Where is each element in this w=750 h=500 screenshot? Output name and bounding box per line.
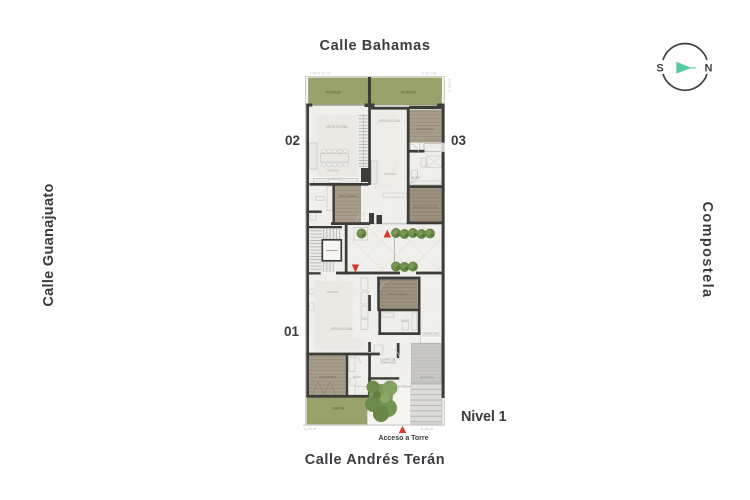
svg-text:RECAMARA: RECAMARA [319,375,337,379]
svg-text:BAÑO: BAÑO [353,374,362,379]
svg-text:COCINA: COCINA [326,290,339,294]
svg-text:JARDIN: JARDIN [332,407,345,411]
svg-text:TERRAZA: TERRAZA [400,91,416,95]
svg-text:RECAMARA PPAL: RECAMARA PPAL [413,205,439,209]
svg-text:TERRAZA: TERRAZA [325,91,341,95]
svg-text:6.10 mts: 6.10 mts [422,71,437,76]
svg-text:COCINA: COCINA [327,169,340,173]
svg-text:S: S [656,63,663,75]
svg-text:RECAMARA: RECAMARA [389,292,407,296]
svg-text:N: N [705,63,713,75]
svg-text:RECAMARA: RECAMARA [416,127,434,131]
svg-text:6.10 m: 6.10 m [421,426,434,431]
svg-text:BODEGA: BODEGA [421,376,434,380]
svg-text:RECAMARA: RECAMARA [339,194,357,198]
svg-text:COCINA: COCINA [384,172,397,176]
svg-text:ENTRADA: ENTRADA [398,384,411,388]
svg-text:BAÑO: BAÑO [412,175,421,180]
svg-text:4.45 m: 4.45 m [304,426,317,431]
svg-text:12.96 m: 12.96 m [448,78,453,93]
svg-text:AREA SOCIAL: AREA SOCIAL [326,125,349,129]
svg-text:BAÑO: BAÑO [401,318,410,323]
svg-text:AREA SOCIAL: AREA SOCIAL [379,119,402,123]
svg-text:TOMA AGUA: TOMA AGUA [380,361,395,365]
svg-text:1.45 6.10 m: 1.45 6.10 m [309,71,331,76]
svg-text:AREA SOCIAL: AREA SOCIAL [331,327,354,331]
svg-text:MEDIDORES: MEDIDORES [423,332,440,336]
